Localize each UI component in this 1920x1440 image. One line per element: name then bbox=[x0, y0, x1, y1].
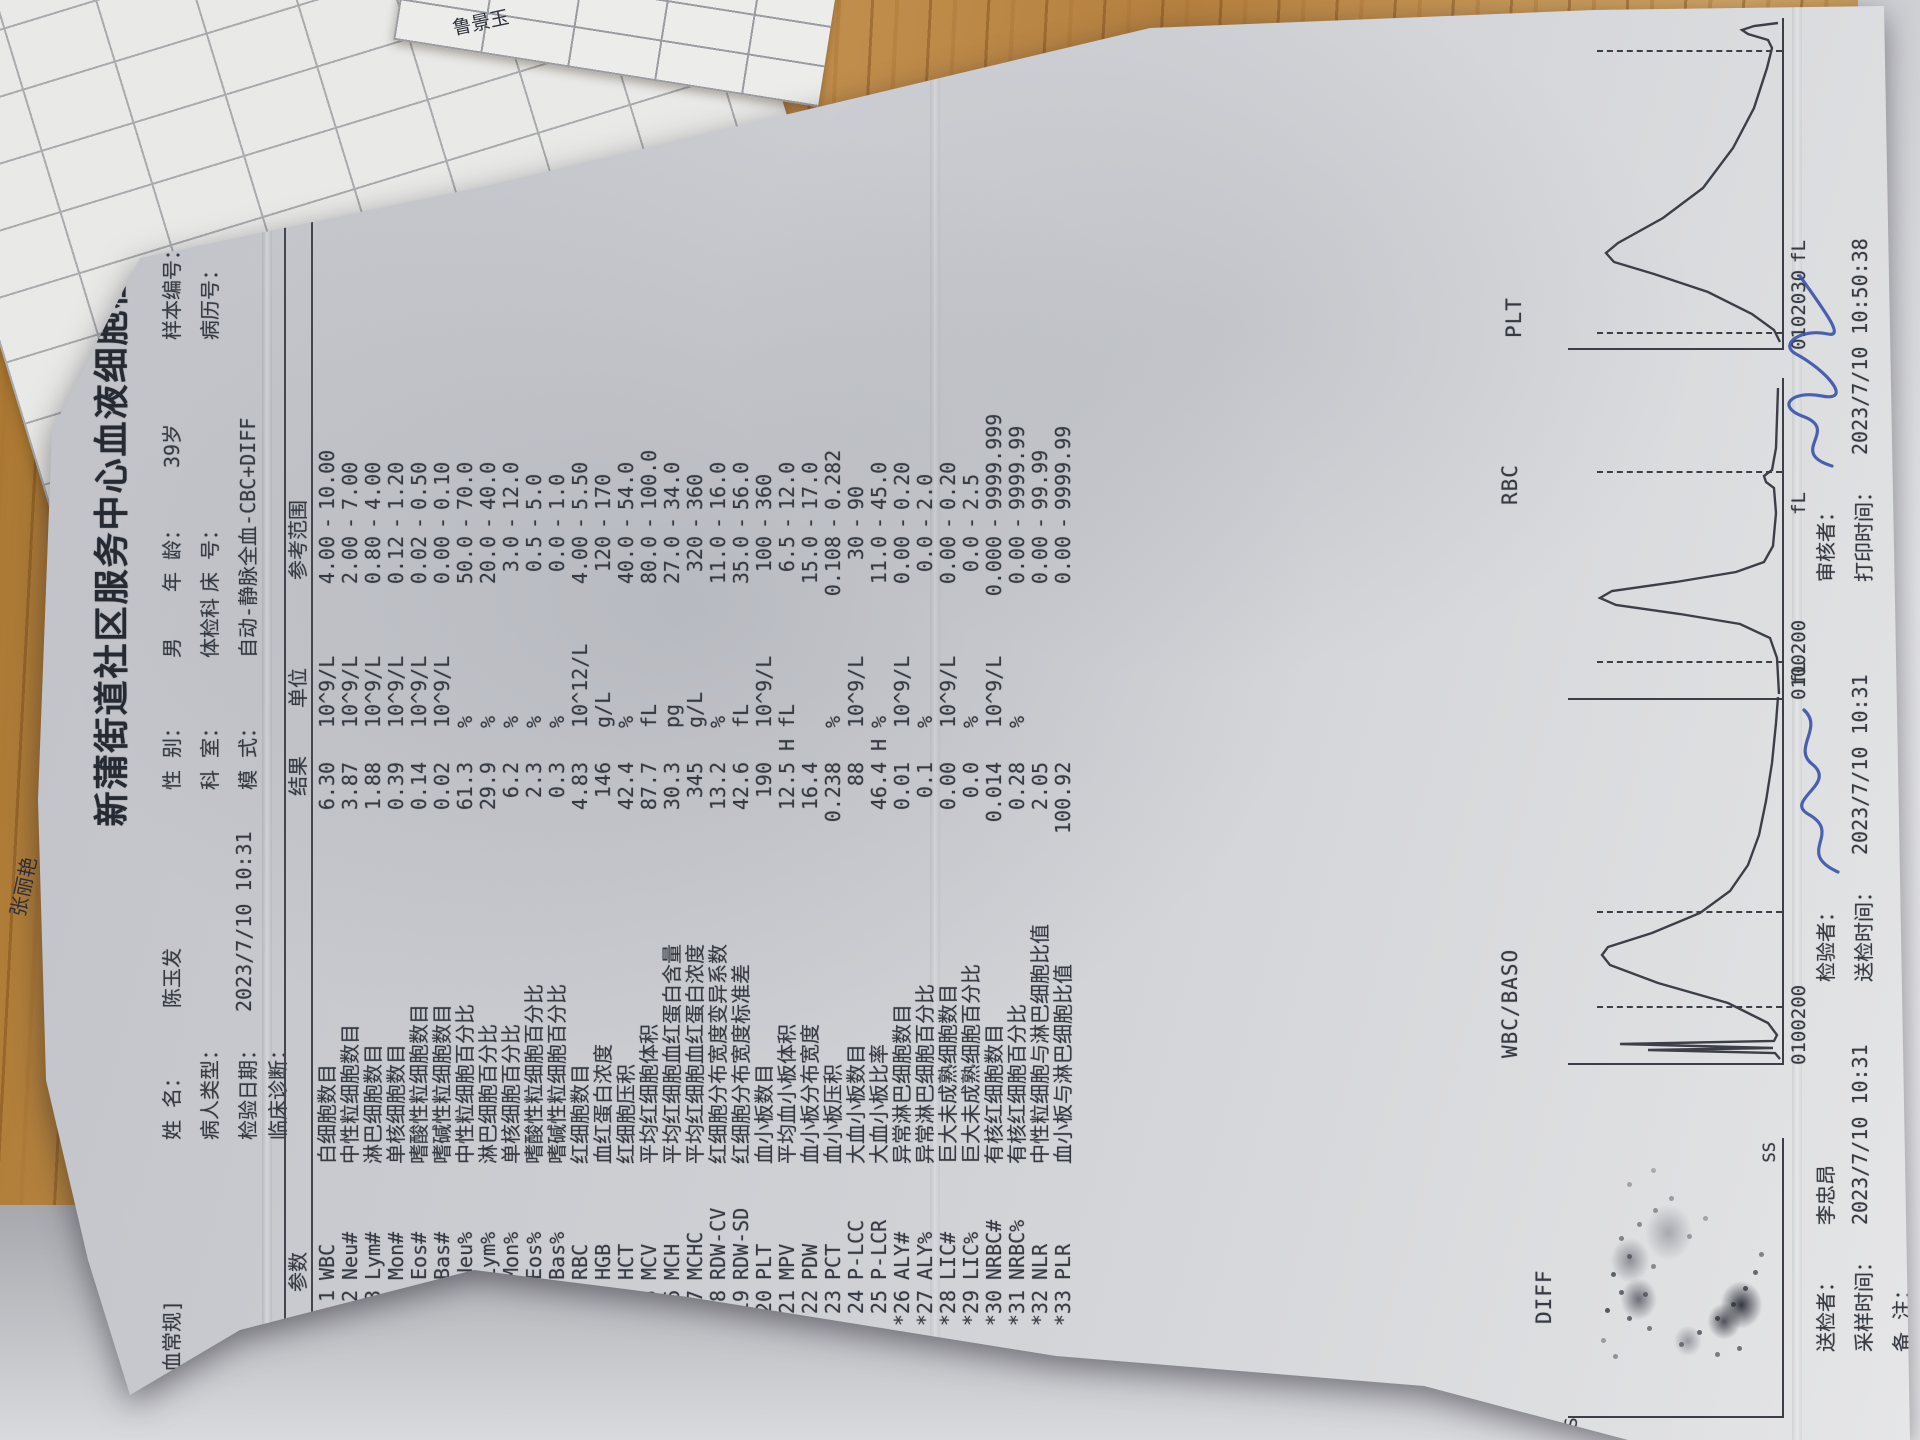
row-range-low: 0.12 bbox=[385, 536, 407, 628]
row-range-low: 0.00 bbox=[1052, 536, 1074, 628]
row-name: 淋巴细胞数目 bbox=[362, 834, 384, 1164]
row-result: 100.92 bbox=[1052, 762, 1074, 834]
row-number: 6 bbox=[431, 1290, 453, 1336]
row-number: 23 bbox=[822, 1290, 844, 1336]
row-number: 21 bbox=[776, 1290, 798, 1336]
test-date-label: 检验日期： bbox=[232, 1040, 261, 1140]
row-range-dash: - bbox=[983, 510, 1005, 536]
table-rule-top bbox=[284, 52, 286, 1388]
table-row: 16 MCH 平均红细胞血红蛋白含量 30.3 pg 27.0 - 34.0 bbox=[661, 36, 684, 1336]
row-unit: g/L bbox=[684, 628, 706, 728]
row-code: Neu# bbox=[339, 1164, 361, 1280]
row-result: 0.39 bbox=[385, 762, 407, 834]
row-name: 嗜碱性粒细胞数目 bbox=[431, 834, 453, 1164]
row-name: 血小板与淋巴细胞比值 bbox=[1052, 834, 1074, 1164]
row-range-dash: - bbox=[730, 510, 752, 536]
axis-tick-label: 0 bbox=[1788, 1054, 1810, 1065]
send-time-label: 送检时间： bbox=[1848, 882, 1877, 982]
wbc-histogram-title: WBC/BASO bbox=[1498, 949, 1522, 1058]
col-range-header: 参考范围 bbox=[282, 500, 311, 580]
table-row: *33 PLR 血小板与淋巴细胞比值 100.92 0.00 - 9999.99 bbox=[1052, 36, 1075, 1336]
table-row: 17 MCHC 平均红细胞血红蛋白浓度 345 g/L 320 - 360 bbox=[684, 36, 707, 1336]
plt-histogram-title: PLT bbox=[1502, 297, 1526, 338]
row-name: 巨大未成熟细胞百分比 bbox=[960, 834, 982, 1164]
row-range-high: 10.00 bbox=[316, 36, 338, 510]
row-name: 中性粒细胞与淋巴细胞比值 bbox=[1029, 834, 1051, 1164]
row-range-low: 2.00 bbox=[339, 536, 361, 628]
row-range-low: 20.0 bbox=[477, 536, 499, 628]
row-name: 有核红细胞百分比 bbox=[1006, 834, 1028, 1164]
test-date-value: 2023/7/10 10:31 bbox=[232, 831, 256, 1012]
row-range-low: 0.0 bbox=[960, 536, 982, 628]
row-unit: % bbox=[914, 628, 936, 728]
row-range-dash: - bbox=[937, 510, 959, 536]
axis-tick-label: 200 bbox=[1788, 620, 1810, 654]
note-line: 备 注： bbox=[1886, 1280, 1915, 1352]
row-unit: % bbox=[707, 628, 729, 728]
row-unit: 10^9/L bbox=[845, 628, 867, 728]
row-code: Mon# bbox=[385, 1164, 407, 1280]
row-name: 平均红细胞血红蛋白浓度 bbox=[684, 834, 706, 1164]
row-range-low: 100 bbox=[753, 536, 775, 628]
row-result: 4.83 bbox=[569, 762, 591, 834]
row-result: 29.9 bbox=[477, 762, 499, 834]
diff-x-axis-label: SS bbox=[1760, 1142, 1780, 1162]
row-range-low: 11.0 bbox=[868, 536, 890, 628]
rbc-histogram-title: RBC bbox=[1498, 464, 1522, 505]
row-range-dash: - bbox=[454, 510, 476, 536]
row-result: 87.7 bbox=[638, 762, 660, 834]
row-range-high: 0.20 bbox=[891, 36, 913, 510]
row-code: RDW-SD bbox=[730, 1164, 752, 1280]
row-range-dash: - bbox=[684, 510, 706, 536]
row-code: Bas# bbox=[431, 1164, 453, 1280]
row-result: 146 bbox=[592, 762, 614, 834]
table-row: 23 PCT 血小板压积 0.238 % 0.108 - 0.282 bbox=[822, 36, 845, 1336]
row-name: 巨大未成熟细胞数目 bbox=[937, 834, 959, 1164]
row-result: 2.3 bbox=[523, 762, 545, 834]
row-result: 13.2 bbox=[707, 762, 729, 834]
row-number: *32 bbox=[1029, 1290, 1051, 1336]
table-row: 25 P-LCR 大血小板比率 46.4 H % 11.0 - 45.0 bbox=[868, 36, 891, 1336]
diff-chart-title: DIFF bbox=[1532, 1269, 1556, 1324]
row-number: 25 bbox=[868, 1290, 890, 1336]
row-range-high: 9999.99 bbox=[1006, 36, 1028, 510]
row-code: NRBC# bbox=[983, 1164, 1005, 1280]
row-unit: % bbox=[454, 628, 476, 728]
row-number: 15 bbox=[638, 1290, 660, 1336]
row-range-high: 56.0 bbox=[730, 36, 752, 510]
row-flag: H bbox=[868, 728, 890, 762]
row-unit: 10^9/L bbox=[316, 628, 338, 728]
row-code: Lym# bbox=[362, 1164, 384, 1280]
row-code: P-LCC bbox=[845, 1164, 867, 1280]
table-row: 6 Bas# 嗜碱性粒细胞数目 0.02 10^9/L 0.00 - 0.10 bbox=[431, 36, 454, 1336]
row-unit: % bbox=[868, 628, 890, 728]
row-unit: % bbox=[546, 628, 568, 728]
row-unit: % bbox=[523, 628, 545, 728]
dept-label: 科 室： bbox=[194, 718, 223, 790]
sample-time-value: 2023/7/10 10:31 bbox=[1848, 1044, 1872, 1225]
row-result: 0.01 bbox=[891, 762, 913, 834]
row-result: 12.5 bbox=[776, 762, 798, 834]
row-result: 190 bbox=[753, 762, 775, 834]
row-unit: % bbox=[822, 628, 844, 728]
table-row: *30 NRBC# 有核红细胞数目 0.014 10^9/L 0.000 - 9… bbox=[983, 36, 1006, 1336]
row-unit: 10^9/L bbox=[891, 628, 913, 728]
row-code: MCV bbox=[638, 1164, 660, 1280]
row-range-low: 50.0 bbox=[454, 536, 476, 628]
table-row: 7 Neu% 中性粒细胞百分比 61.3 % 50.0 - 70.0 bbox=[454, 36, 477, 1336]
row-code: Lym% bbox=[477, 1164, 499, 1280]
row-unit: % bbox=[960, 628, 982, 728]
row-number: 9 bbox=[500, 1290, 522, 1336]
row-result: 0.0 bbox=[960, 762, 982, 834]
table-row: 2 Neu# 中性粒细胞数目 3.87 10^9/L 2.00 - 7.00 bbox=[339, 36, 362, 1336]
row-name: 嗜酸性粒细胞百分比 bbox=[523, 834, 545, 1164]
row-range-high: 12.0 bbox=[500, 36, 522, 510]
row-range-dash: - bbox=[799, 510, 821, 536]
row-number: 4 bbox=[385, 1290, 407, 1336]
row-number: *27 bbox=[914, 1290, 936, 1336]
dept-value: 体检科 bbox=[194, 598, 223, 658]
axis-tick-label: 100 bbox=[1788, 654, 1810, 688]
disclaimer-line: 【本结果仅对此次检测标本负责】 bbox=[1914, 1094, 1920, 1394]
row-code: HCT bbox=[615, 1164, 637, 1280]
row-range-low: 15.0 bbox=[799, 536, 821, 628]
row-code: Mon% bbox=[500, 1164, 522, 1280]
name-label: 姓 名： bbox=[156, 1068, 185, 1140]
row-code: ALY% bbox=[914, 1164, 936, 1280]
row-code: LIC% bbox=[960, 1164, 982, 1280]
row-number: 5 bbox=[408, 1290, 430, 1336]
row-range-high: 54.0 bbox=[615, 36, 637, 510]
row-unit: pg bbox=[661, 628, 683, 728]
report-paper-surface: 新蒲街道社区服务中心血液细胞检验报告单 [血常规] 姓 名： 陈玉发 性 别： … bbox=[0, 0, 1920, 1440]
row-code: RBC bbox=[569, 1164, 591, 1280]
row-number: 24 bbox=[845, 1290, 867, 1336]
patient-type-label: 病人类型： bbox=[194, 1040, 223, 1140]
row-result: 0.14 bbox=[408, 762, 430, 834]
row-range-low: 0.02 bbox=[408, 536, 430, 628]
row-range-high: 17.0 bbox=[799, 36, 821, 510]
row-name: 白细胞数目 bbox=[316, 834, 338, 1164]
row-unit: g/L bbox=[592, 628, 614, 728]
col-result-header: 结果 bbox=[282, 756, 311, 796]
row-unit: fL bbox=[638, 628, 660, 728]
row-result: 0.238 bbox=[822, 762, 844, 834]
row-unit: 10^9/L bbox=[431, 628, 453, 728]
tester-label: 检验者： bbox=[1810, 902, 1839, 982]
row-unit: 10^9/L bbox=[362, 628, 384, 728]
row-range-dash: - bbox=[362, 510, 384, 536]
row-number: 22 bbox=[799, 1290, 821, 1336]
row-range-low: 0.0 bbox=[546, 536, 568, 628]
row-range-dash: - bbox=[1006, 510, 1028, 536]
table-row: *29 LIC% 巨大未成熟细胞百分比 0.0 % 0.0 - 2.5 bbox=[960, 36, 983, 1336]
row-range-low: 0.00 bbox=[1006, 536, 1028, 628]
row-range-dash: - bbox=[1029, 510, 1051, 536]
row-range-high: 2.5 bbox=[960, 36, 982, 510]
row-range-low: 11.0 bbox=[707, 536, 729, 628]
row-range-dash: - bbox=[753, 510, 775, 536]
row-range-high: 170 bbox=[592, 36, 614, 510]
row-unit: fL bbox=[730, 628, 752, 728]
table-row: *27 ALY% 异常淋巴细胞百分比 0.1 % 0.0 - 2.0 bbox=[914, 36, 937, 1336]
row-number: 20 bbox=[753, 1290, 775, 1336]
row-number: 12 bbox=[569, 1290, 591, 1336]
row-range-high: 0.10 bbox=[431, 36, 453, 510]
row-number: *31 bbox=[1006, 1290, 1028, 1336]
table-row: 18 RDW-CV 红细胞分布宽度变异系数 13.2 % 11.0 - 16.0 bbox=[707, 36, 730, 1336]
diff-y-axis-label: FS bbox=[1562, 1418, 1582, 1438]
row-range-high: 2.0 bbox=[914, 36, 936, 510]
row-range-low: 0.0 bbox=[914, 536, 936, 628]
row-name: 平均血小板体积 bbox=[776, 834, 798, 1164]
row-range-high: 1.20 bbox=[385, 36, 407, 510]
row-code: ALY# bbox=[891, 1164, 913, 1280]
row-range-high: 360 bbox=[684, 36, 706, 510]
axis-tick-label: 200 bbox=[1788, 985, 1810, 1019]
row-range-dash: - bbox=[500, 510, 522, 536]
row-range-high: 9999.999 bbox=[983, 36, 1005, 510]
row-range-dash: - bbox=[316, 510, 338, 536]
row-unit: 10^9/L bbox=[937, 628, 959, 728]
row-range-low: 27.0 bbox=[661, 536, 683, 628]
name-value: 陈玉发 bbox=[156, 948, 185, 1008]
row-name: 血小板数目 bbox=[753, 834, 775, 1164]
row-range-low: 0.5 bbox=[523, 536, 545, 628]
row-range-dash: - bbox=[385, 510, 407, 536]
row-name: 单核细胞数目 bbox=[385, 834, 407, 1164]
record-no-label: 病历号： bbox=[194, 260, 223, 340]
row-number: 17 bbox=[684, 1290, 706, 1336]
row-number: 10 bbox=[523, 1290, 545, 1336]
report-title: 新蒲街道社区服务中心血液细胞检验报告单 bbox=[84, 90, 135, 860]
row-result: 6.30 bbox=[316, 762, 338, 834]
row-number: 1 bbox=[316, 1290, 338, 1336]
diff-scatter-plot: SS bbox=[1568, 1138, 1784, 1418]
row-range-low: 0.000 bbox=[983, 536, 1005, 628]
row-name: 红细胞分布宽度变异系数 bbox=[707, 834, 729, 1164]
table-row: *31 NRBC% 有核红细胞百分比 0.28 % 0.00 - 9999.99 bbox=[1006, 36, 1029, 1336]
row-range-dash: - bbox=[891, 510, 913, 536]
row-name: 中性粒细胞数目 bbox=[339, 834, 361, 1164]
row-name: 嗜酸性粒细胞数目 bbox=[408, 834, 430, 1164]
results-table: 1 WBC 白细胞数目 6.30 10^9/L 4.00 - 10.00 bbox=[316, 36, 1075, 1336]
table-row: 19 RDW-SD 红细胞分布宽度标准差 42.6 fL 35.0 - 56.0 bbox=[730, 36, 753, 1336]
table-row: 4 Mon# 单核细胞数目 0.39 10^9/L 0.12 - 1.20 bbox=[385, 36, 408, 1336]
row-number: 19 bbox=[730, 1290, 752, 1336]
row-range-low: 320 bbox=[684, 536, 706, 628]
row-code: PLT bbox=[753, 1164, 775, 1280]
table-rule-bottom bbox=[311, 52, 313, 1388]
rbc-histogram bbox=[1568, 378, 1784, 700]
row-unit: 10^12/L bbox=[569, 628, 591, 728]
row-result: 0.28 bbox=[1006, 762, 1028, 834]
row-result: 3.87 bbox=[339, 762, 361, 834]
panel-tag: [血常规] bbox=[156, 1300, 185, 1384]
table-row: 14 HCT 红细胞压积 42.4 % 40.0 - 54.0 bbox=[615, 36, 638, 1336]
header-line-1: [血常规] 姓 名： 陈玉发 性 别： 男 年 龄： 39岁 样本编号： 2 bbox=[156, 0, 182, 1440]
col-param-header: 参数 bbox=[282, 1252, 311, 1292]
row-result: 0.014 bbox=[983, 762, 1005, 834]
row-range-dash: - bbox=[845, 510, 867, 536]
row-code: PCT bbox=[822, 1164, 844, 1280]
table-row: 12 RBC 红细胞数目 4.83 10^12/L 4.00 - 5.50 bbox=[569, 36, 592, 1336]
row-result: 0.3 bbox=[546, 762, 568, 834]
print-time-value: 2023/7/10 10:50:38 bbox=[1848, 238, 1872, 455]
row-range-low: 0.00 bbox=[937, 536, 959, 628]
age-value: 39岁 bbox=[156, 424, 185, 468]
row-range-low: 0.00 bbox=[431, 536, 453, 628]
row-code: Neu% bbox=[454, 1164, 476, 1280]
row-range-high: 1.0 bbox=[546, 36, 568, 510]
table-row: 1 WBC 白细胞数目 6.30 10^9/L 4.00 - 10.00 bbox=[316, 36, 339, 1336]
row-result: 88 bbox=[845, 762, 867, 834]
row-number: 14 bbox=[615, 1290, 637, 1336]
row-name: 血小板分布宽度 bbox=[799, 834, 821, 1164]
axis-tick-label: 100 bbox=[1788, 1019, 1810, 1053]
rbc-axis-ticks: 0100200 fL bbox=[1788, 492, 1810, 700]
row-range-dash: - bbox=[960, 510, 982, 536]
row-range-low: 6.5 bbox=[776, 536, 798, 628]
report-document: 新蒲街道社区服务中心血液细胞检验报告单 [血常规] 姓 名： 陈玉发 性 别： … bbox=[10, 0, 1920, 1440]
table-row: *32 NLR 中性粒细胞与淋巴细胞比值 2.05 0.00 - 99.99 bbox=[1029, 36, 1052, 1336]
row-code: MCHC bbox=[684, 1164, 706, 1280]
row-code: RDW-CV bbox=[707, 1164, 729, 1280]
row-name: 有核红细胞数目 bbox=[983, 834, 1005, 1164]
table-row: 24 P-LCC 大血小板数目 88 10^9/L 30 - 90 bbox=[845, 36, 868, 1336]
table-row: *26 ALY# 异常淋巴细胞数目 0.01 10^9/L 0.00 - 0.2… bbox=[891, 36, 914, 1336]
note-label: 备 注： bbox=[1890, 1280, 1914, 1352]
row-range-dash: - bbox=[408, 510, 430, 536]
axis-unit-label: fL bbox=[1788, 492, 1810, 515]
row-name: 红细胞压积 bbox=[615, 834, 637, 1164]
row-unit: % bbox=[500, 628, 522, 728]
reviewer-label: 审核者： bbox=[1810, 502, 1839, 582]
row-range-low: 35.0 bbox=[730, 536, 752, 628]
row-number: *30 bbox=[983, 1290, 1005, 1336]
row-number: 11 bbox=[546, 1290, 568, 1336]
row-range-high: 12.0 bbox=[776, 36, 798, 510]
sender-label: 送检者： bbox=[1810, 1272, 1839, 1352]
axis-tick-label: 0 bbox=[1788, 689, 1810, 700]
table-row: 3 Lym# 淋巴细胞数目 1.88 10^9/L 0.80 - 4.00 bbox=[362, 36, 385, 1336]
table-row: 9 Mon% 单核细胞百分比 6.2 % 3.0 - 12.0 bbox=[500, 36, 523, 1336]
row-range-low: 4.00 bbox=[569, 536, 591, 628]
row-range-high: 16.0 bbox=[707, 36, 729, 510]
sample-no-label: 样本编号： bbox=[156, 240, 185, 340]
axis-unit-label: fL bbox=[1788, 240, 1810, 263]
row-unit: % bbox=[1006, 628, 1028, 728]
row-range-low: 80.0 bbox=[638, 536, 660, 628]
row-range-low: 40.0 bbox=[615, 536, 637, 628]
row-range-low: 0.80 bbox=[362, 536, 384, 628]
table-row: 15 MCV 平均红细胞体积 87.7 fL 80.0 - 100.0 bbox=[638, 36, 661, 1336]
row-code: P-LCR bbox=[868, 1164, 890, 1280]
col-unit-header: 单位 bbox=[282, 668, 311, 708]
diff-scatter-speckles bbox=[1568, 1413, 1571, 1416]
row-name: 淋巴细胞百分比 bbox=[477, 834, 499, 1164]
row-result: 16.4 bbox=[799, 762, 821, 834]
row-range-low: 3.0 bbox=[500, 536, 522, 628]
table-row: 21 MPV 平均血小板体积 12.5 H fL 6.5 - 12.0 bbox=[776, 36, 799, 1336]
row-range-high: 100.0 bbox=[638, 36, 660, 510]
row-result: 1.88 bbox=[362, 762, 384, 834]
row-range-high: 0.50 bbox=[408, 36, 430, 510]
row-range-high: 40.0 bbox=[477, 36, 499, 510]
row-range-high: 90 bbox=[845, 36, 867, 510]
row-name: 单核细胞百分比 bbox=[500, 834, 522, 1164]
row-result: 61.3 bbox=[454, 762, 476, 834]
row-unit: 10^9/L bbox=[983, 628, 1005, 728]
row-code: Eos% bbox=[523, 1164, 545, 1280]
row-name: 异常淋巴细胞百分比 bbox=[914, 834, 936, 1164]
row-name: 红细胞数目 bbox=[569, 834, 591, 1164]
row-range-high: 4.00 bbox=[362, 36, 384, 510]
row-number: 3 bbox=[362, 1290, 384, 1336]
diff-scatter-clusters bbox=[1568, 1138, 1782, 1416]
row-result: 42.6 bbox=[730, 762, 752, 834]
row-code: PLR bbox=[1052, 1164, 1074, 1280]
sample-no-value: 2 bbox=[156, 176, 180, 188]
row-range-dash: - bbox=[638, 510, 660, 536]
row-name: 中性粒细胞百分比 bbox=[454, 834, 476, 1164]
wbc-histogram-curve bbox=[1568, 693, 1782, 1063]
row-range-dash: - bbox=[431, 510, 453, 536]
sex-value: 男 bbox=[156, 638, 185, 658]
row-result: 2.05 bbox=[1029, 762, 1051, 834]
row-range-high: 5.0 bbox=[523, 36, 545, 510]
row-range-high: 5.50 bbox=[569, 36, 591, 510]
row-range-high: 45.0 bbox=[868, 36, 890, 510]
row-range-high: 34.0 bbox=[661, 36, 683, 510]
row-name: 大血小板比率 bbox=[868, 834, 890, 1164]
mode-value: 自动-静脉全血-CBC+DIFF bbox=[232, 418, 261, 658]
row-range-dash: - bbox=[1052, 510, 1074, 536]
row-range-dash: - bbox=[822, 510, 844, 536]
row-result: 46.4 bbox=[868, 762, 890, 834]
table-row: 5 Eos# 嗜酸性粒细胞数目 0.14 10^9/L 0.02 - 0.50 bbox=[408, 36, 431, 1336]
row-number: *29 bbox=[960, 1290, 982, 1336]
row-unit: 10^9/L bbox=[753, 628, 775, 728]
row-range-dash: - bbox=[592, 510, 614, 536]
plt-histogram bbox=[1568, 18, 1784, 350]
row-code: MCH bbox=[661, 1164, 683, 1280]
rbc-histogram-curve bbox=[1568, 378, 1782, 698]
row-range-low: 30 bbox=[845, 536, 867, 628]
wbc-histogram bbox=[1568, 693, 1784, 1065]
table-row: 20 PLT 血小板数目 190 10^9/L 100 - 360 bbox=[753, 36, 776, 1336]
row-name: 异常淋巴细胞数目 bbox=[891, 834, 913, 1164]
table-row: 10 Eos% 嗜酸性粒细胞百分比 2.3 % 0.5 - 5.0 bbox=[523, 36, 546, 1336]
header-line-2: 病人类型： 科 室： 体检科 床 号： 病历号： bbox=[194, 0, 220, 1440]
row-code: LIC# bbox=[937, 1164, 959, 1280]
row-flag: H bbox=[776, 728, 798, 762]
row-range-dash: - bbox=[569, 510, 591, 536]
sample-time-label: 采样时间： bbox=[1848, 1252, 1877, 1352]
row-range-low: 120 bbox=[592, 536, 614, 628]
table-row: 22 PDW 血小板分布宽度 16.4 15.0 - 17.0 bbox=[799, 36, 822, 1336]
row-range-low: 0.00 bbox=[891, 536, 913, 628]
row-result: 6.2 bbox=[500, 762, 522, 834]
row-unit: % bbox=[477, 628, 499, 728]
row-unit: % bbox=[615, 628, 637, 728]
row-result: 0.02 bbox=[431, 762, 453, 834]
row-name: 红细胞分布宽度标准差 bbox=[730, 834, 752, 1164]
age-label: 年 龄： bbox=[156, 520, 185, 592]
